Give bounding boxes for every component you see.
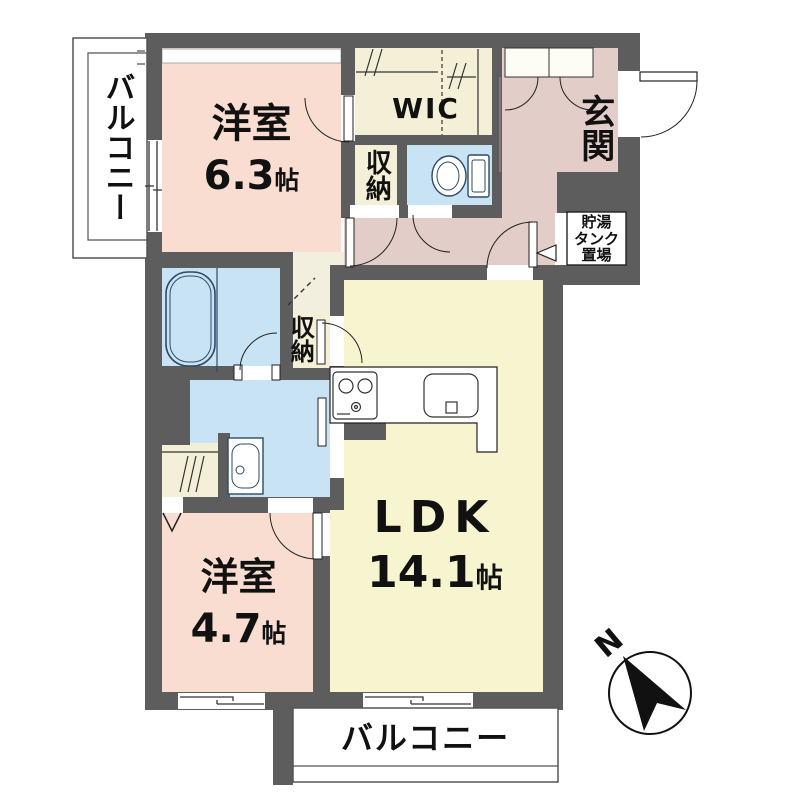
wall-bedroom1-bottom [145,252,293,268]
tank-label: 貯湯 タンク 置場 [567,214,626,264]
storage-upper-label: 収納 [362,149,389,201]
wic-label: WIC [355,94,497,123]
bath-door-post-left [234,365,242,380]
bedroom2-door-opening [268,498,313,513]
front-door-opening [618,71,640,137]
bedroom1-top-band [162,49,341,63]
bedroom2-window-opening [178,693,265,709]
tank-label-line2: タンク [574,230,619,248]
toilet-door-opening [408,205,452,218]
shoe-cabinet-icon [505,48,593,77]
tank-hatch-opening [555,213,567,265]
bath-door-post-right [272,365,280,380]
washroom-sliding-door-panel [318,398,326,446]
storage-middle-label: 収納 [287,315,312,363]
front-door-leaf [640,72,697,81]
bath-floor [162,268,280,372]
bedroom1-label: 洋室 [162,103,341,145]
ldk-label: LDK [327,495,543,541]
bedroom1-floor [162,48,341,255]
ldk-area: 14.1帖 [327,550,543,596]
bedroom1-area-unit: 帖 [275,166,300,195]
balcony-bottom-label: バルコニー [293,722,558,756]
compass [609,652,691,734]
wall-right-lower [543,265,563,710]
tank-label-line3: 置場 [581,246,611,264]
wall-washroom-left [162,366,190,445]
closet-door-opening [162,497,183,513]
tank-label-line1: 貯湯 [581,213,611,231]
bedroom2-area-number: 4.7 [191,606,262,652]
wall-storage-toilet [397,145,407,207]
toilet-icon [432,155,489,197]
bedroom2-area: 4.7帖 [162,608,315,650]
wic-door-leaf [344,96,353,141]
storage-upper-door-leaf [346,218,354,267]
ldk-area-number: 14.1 [367,547,476,598]
storage-middle-door-leaf [317,320,325,364]
balcony-left-label: バルコニー [101,72,133,222]
ldk-window-opening [363,693,473,709]
bedroom2-label: 洋室 [162,558,315,598]
front-door-arc [641,81,697,137]
wall-wic-bottom [341,135,502,145]
bedroom2-door-leaf [313,513,322,559]
hall-ldk-door-leaf [529,222,537,267]
wall-top [145,33,640,48]
ldk-floor [327,280,543,692]
storage-upper-door-opening [350,205,399,218]
bedroom1-area: 6.3帖 [162,155,341,197]
storage-middle-door-opening [330,316,344,366]
wall-storage-middle-bottom [280,368,330,380]
floor-plan: 洋室 6.3帖 WIC 玄関 貯湯 タンク 置場 収納 収納 LDK 14.1帖… [0,0,800,800]
bedroom2-area-unit: 帖 [262,619,287,648]
wall-balcony-divider [273,692,293,785]
washbasin-icon [228,438,263,494]
genkan-label: 玄関 [576,94,612,162]
ldk-area-unit: 帖 [476,563,503,594]
bedroom1-area-number: 6.3 [204,153,275,199]
wall-ldk-left-a [330,265,344,316]
hall-ldk-door-opening [487,265,533,280]
